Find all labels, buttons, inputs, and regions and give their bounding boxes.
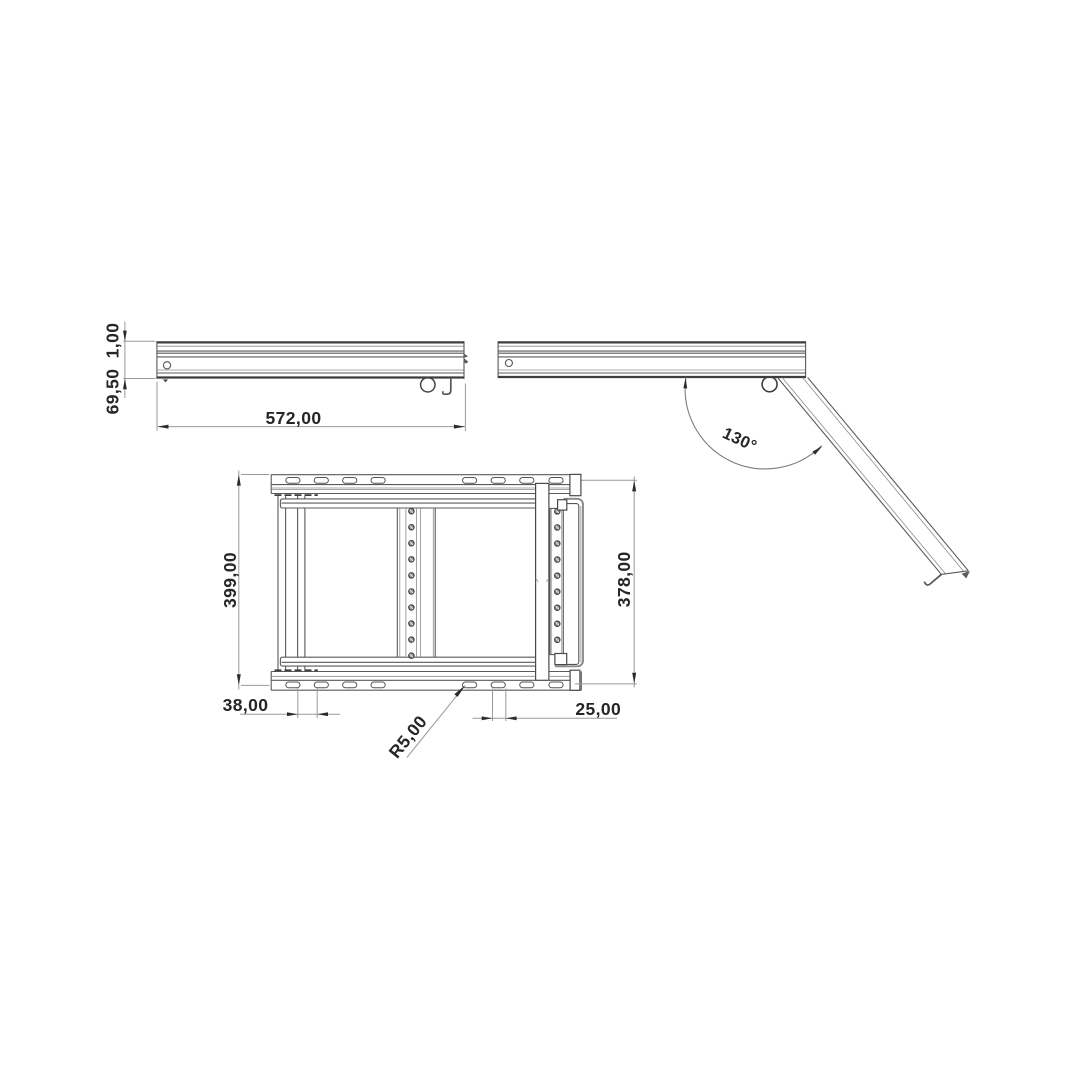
svg-text:38,00: 38,00 [223, 695, 269, 715]
svg-text:69,50: 69,50 [103, 369, 123, 415]
svg-text:399,00: 399,00 [220, 552, 240, 608]
svg-text:378,00: 378,00 [614, 551, 634, 607]
svg-text:25,00: 25,00 [575, 699, 621, 719]
svg-text:1,00: 1,00 [103, 323, 123, 359]
svg-text:572,00: 572,00 [266, 408, 322, 428]
